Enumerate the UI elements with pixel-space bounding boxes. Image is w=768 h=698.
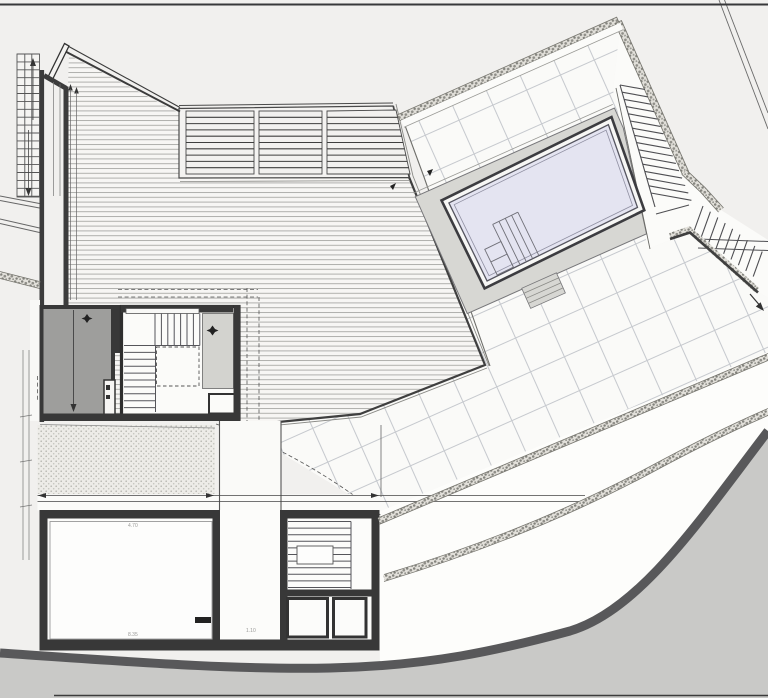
svg-text:8.35: 8.35	[128, 632, 138, 638]
svg-text:4.70: 4.70	[128, 523, 138, 529]
svg-text:1.10: 1.10	[246, 628, 256, 634]
